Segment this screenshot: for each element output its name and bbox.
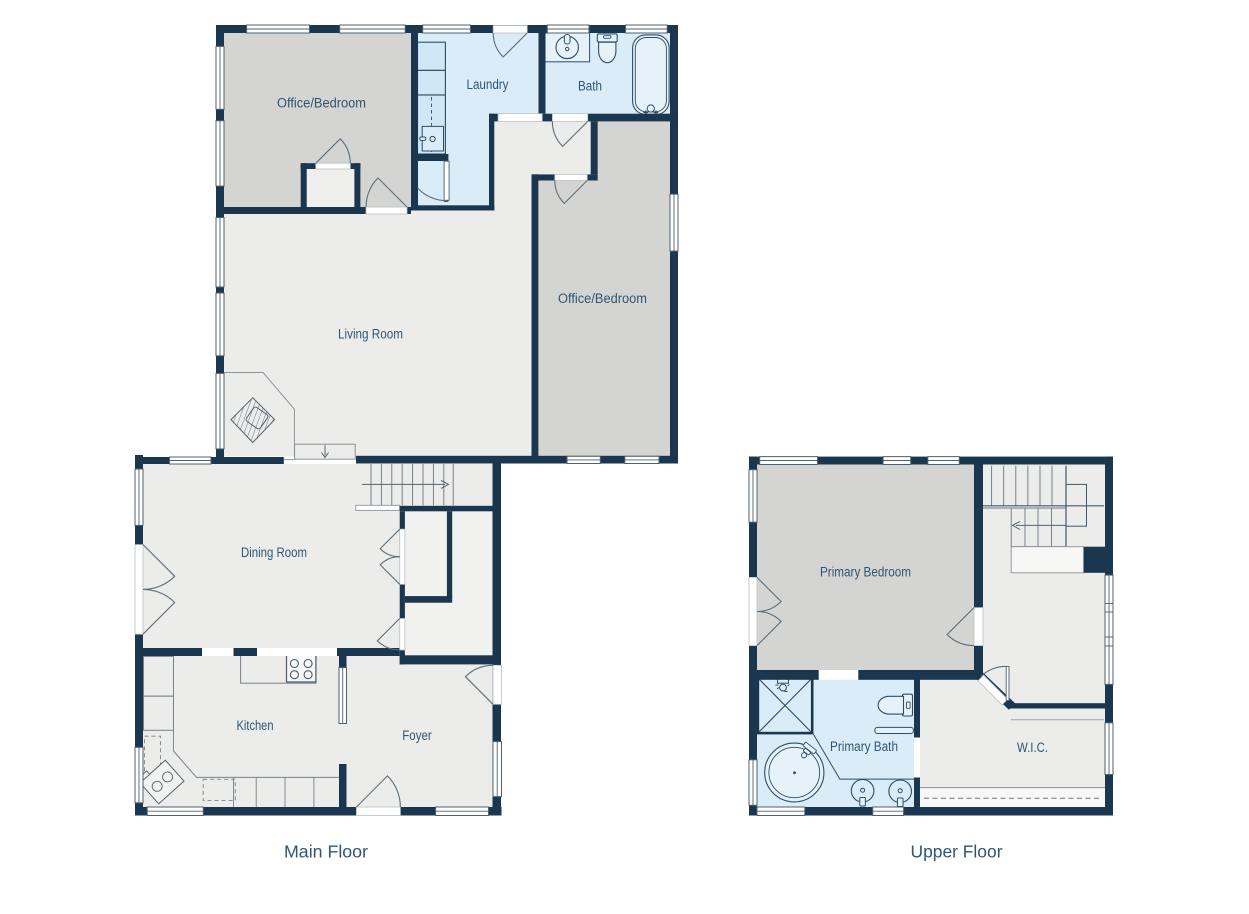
svg-text:Kitchen: Kitchen [237,718,274,733]
svg-text:Foyer: Foyer [402,728,432,743]
svg-text:Laundry: Laundry [467,77,509,92]
svg-text:Living Room: Living Room [338,327,403,342]
svg-text:Primary Bedroom: Primary Bedroom [820,565,911,580]
svg-text:Upper Floor: Upper Floor [911,842,1003,862]
svg-text:Primary Bath: Primary Bath [830,739,898,754]
svg-text:Dining Room: Dining Room [241,545,307,560]
svg-text:Main Floor: Main Floor [284,842,368,862]
svg-text:Office/Bedroom: Office/Bedroom [558,291,647,306]
svg-text:Bath: Bath [578,79,602,94]
svg-text:W.I.C.: W.I.C. [1017,740,1048,755]
svg-text:Office/Bedroom: Office/Bedroom [277,96,366,111]
